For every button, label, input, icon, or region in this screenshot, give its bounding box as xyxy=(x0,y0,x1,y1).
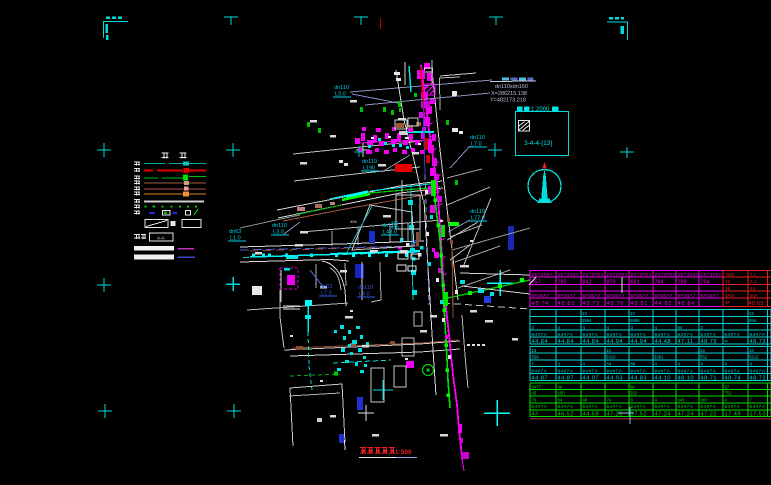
svg-text:13: 13 xyxy=(749,348,754,353)
svg-text:5212: 5212 xyxy=(749,355,759,360)
svg-text:44.82: 44.82 xyxy=(655,301,673,307)
svg-text:3361: 3361 xyxy=(654,355,664,360)
svg-text:74: 74 xyxy=(607,398,612,403)
svg-text:84#7A: 84#7A xyxy=(607,332,623,337)
svg-text:7.1: 7.1 xyxy=(750,272,757,277)
svg-text:2573#8A: 2573#8A xyxy=(655,272,677,277)
svg-text:17.49: 17.49 xyxy=(725,412,742,418)
svg-text:84#7A: 84#7A xyxy=(532,404,548,409)
svg-text:dn110: dn110 xyxy=(470,135,485,141)
svg-text:84#7A: 84#7A xyxy=(583,332,599,337)
svg-text:48.81: 48.81 xyxy=(631,301,649,307)
svg-text:dn110: dn110 xyxy=(358,285,373,291)
svg-text:84#7A: 84#7A xyxy=(750,404,766,409)
svg-text:84#7A: 84#7A xyxy=(750,332,766,337)
svg-text:44.94: 44.94 xyxy=(607,339,624,345)
svg-text:48.74: 48.74 xyxy=(532,301,550,307)
svg-text:84#7A: 84#7A xyxy=(558,404,574,409)
svg-text:47.22: 47.22 xyxy=(701,412,718,418)
svg-text:41: 41 xyxy=(750,286,756,292)
svg-text:84: 84 xyxy=(678,325,683,330)
svg-text:2573#8A: 2573#8A xyxy=(701,272,723,277)
svg-text:84#7A: 84#7A xyxy=(701,404,717,409)
svg-text:75#2: 75#2 xyxy=(725,272,735,277)
svg-text:88: 88 xyxy=(631,362,636,367)
svg-text:84#7A: 84#7A xyxy=(750,369,766,374)
svg-text:556: 556 xyxy=(749,318,757,323)
svg-text:1:500: 1:500 xyxy=(395,449,412,456)
svg-text:48: 48 xyxy=(583,398,588,403)
svg-text:47.28: 47.28 xyxy=(607,412,624,418)
svg-text:2573#8A: 2573#8A xyxy=(558,272,580,277)
svg-text:84#7A: 84#7A xyxy=(655,404,671,409)
svg-text:842: 842 xyxy=(583,280,592,286)
svg-text:84#7A: 84#7A xyxy=(655,369,671,374)
svg-text:2573#8A: 2573#8A xyxy=(678,272,700,277)
svg-text:4#4A: 4#4A xyxy=(725,293,735,298)
svg-text:dn110: dn110 xyxy=(470,209,485,215)
svg-text:681: 681 xyxy=(631,280,640,286)
svg-text:84#7A: 84#7A xyxy=(678,404,694,409)
svg-text:5885: 5885 xyxy=(630,318,640,323)
svg-text:13: 13 xyxy=(630,311,635,316)
svg-text:84#7A: 84#7A xyxy=(558,332,574,337)
svg-text:47.24: 47.24 xyxy=(678,412,695,418)
svg-text:84#7A: 84#7A xyxy=(631,404,647,409)
svg-text:48.74: 48.74 xyxy=(725,376,742,382)
svg-text:788: 788 xyxy=(678,280,687,286)
svg-text:A-A: A-A xyxy=(157,236,165,241)
svg-text:3-4-4-[13]: 3-4-4-[13] xyxy=(524,140,552,147)
svg-text:2573#8A: 2573#8A xyxy=(607,272,629,277)
svg-text:45: 45 xyxy=(532,391,537,396)
svg-text:84: 84 xyxy=(558,398,563,403)
svg-text:84#7A: 84#7A xyxy=(532,369,548,374)
svg-text:Y=482173.218: Y=482173.218 xyxy=(490,98,526,104)
svg-text:2573#8A: 2573#8A xyxy=(532,272,554,277)
svg-text:8#48A7: 8#48A7 xyxy=(583,293,601,298)
svg-text:559: 559 xyxy=(532,355,540,360)
svg-text:48.72: 48.72 xyxy=(750,339,767,345)
svg-text:8#48A7: 8#48A7 xyxy=(655,293,673,298)
svg-text:84#7A: 84#7A xyxy=(701,369,717,374)
svg-text:879: 879 xyxy=(607,280,616,286)
svg-text:502: 502 xyxy=(630,391,638,396)
svg-text:784: 784 xyxy=(655,280,664,286)
svg-text:38: 38 xyxy=(725,286,731,292)
svg-text:9#77: 9#77 xyxy=(532,385,542,390)
svg-text:44.10: 44.10 xyxy=(655,376,672,382)
svg-text:48.79: 48.79 xyxy=(701,339,718,345)
svg-text:dn110: dn110 xyxy=(272,223,287,229)
svg-text:84#7A: 84#7A xyxy=(678,332,694,337)
svg-text:84#7A: 84#7A xyxy=(725,369,741,374)
svg-text:785: 785 xyxy=(558,280,567,286)
svg-text:8#48A7: 8#48A7 xyxy=(678,293,696,298)
svg-text:dn110xdn160: dn110xdn160 xyxy=(495,84,528,90)
svg-text:dn110: dn110 xyxy=(334,85,349,91)
svg-text:70: 70 xyxy=(532,398,537,403)
svg-text:48.84: 48.84 xyxy=(678,301,696,307)
svg-text:35A: 35A xyxy=(750,293,758,298)
svg-text:44.07: 44.07 xyxy=(583,376,600,382)
svg-text:44.48: 44.48 xyxy=(655,339,672,345)
svg-text:48.69: 48.69 xyxy=(749,301,764,307)
svg-text:44.94: 44.94 xyxy=(631,339,648,345)
svg-text:4#: 4# xyxy=(558,385,563,390)
svg-text:17.53: 17.53 xyxy=(750,412,767,418)
svg-text:dn110: dn110 xyxy=(382,223,397,229)
svg-text:13: 13 xyxy=(749,311,754,316)
svg-text:44.58: 44.58 xyxy=(583,412,600,418)
svg-text:84#7A: 84#7A xyxy=(607,369,623,374)
svg-text:48.71: 48.71 xyxy=(701,376,718,382)
svg-text:2584: 2584 xyxy=(582,318,592,323)
svg-text:44.84: 44.84 xyxy=(583,339,600,345)
svg-text:31: 31 xyxy=(725,279,731,285)
svg-text:44.83: 44.83 xyxy=(631,376,648,382)
svg-text:13: 13 xyxy=(606,348,611,353)
svg-text:X=286215.138: X=286215.138 xyxy=(491,91,527,97)
svg-text:13: 13 xyxy=(582,311,587,316)
svg-text:2573#8A: 2573#8A xyxy=(631,272,653,277)
svg-text:84#7A: 84#7A xyxy=(558,369,574,374)
svg-text:48.10: 48.10 xyxy=(678,376,695,382)
svg-text:dn63: dn63 xyxy=(229,229,241,235)
svg-text:48.83: 48.83 xyxy=(558,301,576,307)
svg-text:84#7A: 84#7A xyxy=(583,369,599,374)
svg-text:2573#8A: 2573#8A xyxy=(583,272,605,277)
svg-text:2.1: 2.1 xyxy=(750,279,757,285)
svg-text:5310: 5310 xyxy=(606,355,616,360)
svg-text:13: 13 xyxy=(700,348,705,353)
svg-text:84#7A: 84#7A xyxy=(725,332,741,337)
svg-text:8#48A7: 8#48A7 xyxy=(701,293,719,298)
svg-text:340: 340 xyxy=(678,398,686,403)
svg-text:84#7A: 84#7A xyxy=(607,404,623,409)
svg-text:13: 13 xyxy=(532,348,537,353)
svg-text:4#: 4# xyxy=(532,412,540,418)
svg-text:8#48A7: 8#48A7 xyxy=(558,293,576,298)
svg-text:=: = xyxy=(725,339,729,345)
svg-text:84#7A: 84#7A xyxy=(532,332,548,337)
svg-text:84#7A: 84#7A xyxy=(725,404,741,409)
svg-text:84#7A: 84#7A xyxy=(655,332,671,337)
svg-text:387: 387 xyxy=(701,398,709,403)
svg-text:498: 498 xyxy=(350,219,357,224)
svg-text:44.87: 44.87 xyxy=(532,376,549,382)
svg-text:84#7A: 84#7A xyxy=(678,369,694,374)
svg-text:84#7A: 84#7A xyxy=(701,332,717,337)
svg-text:44.93: 44.93 xyxy=(607,376,624,382)
svg-text:44.84: 44.84 xyxy=(558,339,575,345)
svg-text:751: 751 xyxy=(725,391,733,396)
svg-text:48.76: 48.76 xyxy=(607,301,625,307)
svg-text:754: 754 xyxy=(701,280,710,286)
svg-text:8#48A7: 8#48A7 xyxy=(607,293,625,298)
svg-text:17.52: 17.52 xyxy=(631,412,648,418)
svg-text:84#7A: 84#7A xyxy=(583,404,599,409)
svg-text:48.72: 48.72 xyxy=(750,376,767,382)
svg-text:67: 67 xyxy=(725,385,730,390)
svg-text:4#: 4# xyxy=(725,300,730,305)
svg-text:100: 100 xyxy=(558,391,566,396)
svg-text:46.52: 46.52 xyxy=(558,412,575,418)
svg-text:44.87: 44.87 xyxy=(558,376,575,382)
svg-text:8#48A7: 8#48A7 xyxy=(631,293,649,298)
svg-text:44.84: 44.84 xyxy=(532,339,549,345)
svg-text:dn110: dn110 xyxy=(362,159,377,165)
svg-text:48.73: 48.73 xyxy=(583,301,601,307)
svg-text:552: 552 xyxy=(700,355,708,360)
svg-text:9#: 9# xyxy=(630,385,635,390)
svg-text:84#7A: 84#7A xyxy=(631,369,647,374)
svg-text:34: 34 xyxy=(607,362,612,367)
svg-text:47.11: 47.11 xyxy=(678,339,694,345)
svg-text:8#48A7: 8#48A7 xyxy=(532,293,550,298)
svg-text:47.24: 47.24 xyxy=(655,412,672,418)
svg-text:84#7A: 84#7A xyxy=(631,332,647,337)
